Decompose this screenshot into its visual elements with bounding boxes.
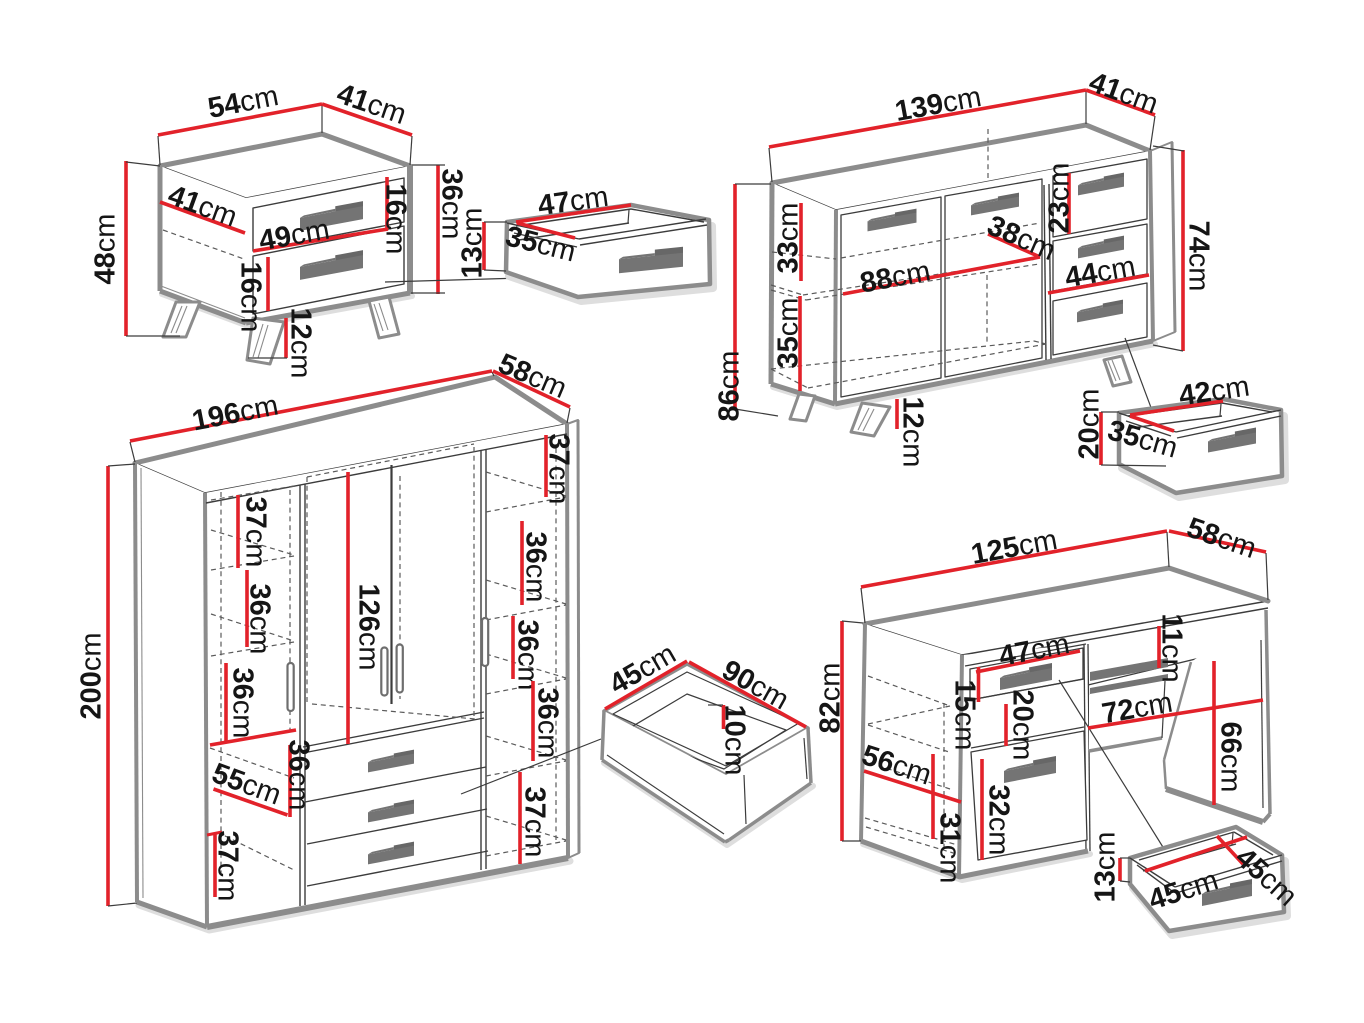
svg-text:54cm: 54cm	[205, 80, 281, 125]
svg-text:86cm: 86cm	[714, 351, 746, 422]
svg-text:20cm: 20cm	[1074, 389, 1106, 460]
svg-text:13cm: 13cm	[1090, 832, 1122, 903]
svg-text:126cm: 126cm	[353, 583, 385, 670]
svg-text:37cm: 37cm	[240, 497, 272, 568]
svg-text:200cm: 200cm	[76, 632, 108, 719]
svg-text:41cm: 41cm	[1085, 66, 1163, 120]
svg-text:36cm: 36cm	[520, 532, 552, 603]
svg-text:36cm: 36cm	[227, 668, 259, 739]
svg-text:16cm: 16cm	[235, 262, 267, 333]
svg-text:35cm: 35cm	[773, 298, 805, 369]
svg-text:41cm: 41cm	[333, 78, 410, 131]
svg-text:11cm: 11cm	[1156, 613, 1188, 682]
svg-text:36cm: 36cm	[532, 688, 564, 759]
svg-text:37cm: 37cm	[212, 831, 244, 902]
svg-text:12cm: 12cm	[897, 397, 929, 468]
svg-text:125cm: 125cm	[969, 524, 1060, 571]
svg-text:74cm: 74cm	[1183, 221, 1215, 292]
svg-text:37cm: 37cm	[519, 787, 551, 858]
svg-text:36cm: 36cm	[244, 584, 276, 655]
svg-text:10cm: 10cm	[719, 705, 751, 776]
svg-text:15cm: 15cm	[949, 680, 981, 751]
svg-text:36cm: 36cm	[283, 740, 315, 811]
svg-text:139cm: 139cm	[893, 81, 984, 128]
svg-text:36cm: 36cm	[512, 620, 544, 691]
svg-text:58cm: 58cm	[1183, 512, 1260, 565]
svg-text:32cm: 32cm	[983, 785, 1015, 856]
svg-text:37cm: 37cm	[543, 434, 575, 505]
svg-text:48cm: 48cm	[90, 214, 122, 285]
svg-text:33cm: 33cm	[773, 203, 805, 274]
svg-text:66cm: 66cm	[1215, 722, 1247, 793]
svg-text:13cm: 13cm	[457, 208, 489, 279]
svg-text:23cm: 23cm	[1044, 163, 1076, 234]
svg-text:31cm: 31cm	[934, 813, 966, 884]
svg-text:16cm: 16cm	[380, 184, 412, 255]
svg-text:20cm: 20cm	[1007, 690, 1039, 761]
svg-text:82cm: 82cm	[815, 663, 847, 734]
svg-text:12cm: 12cm	[285, 308, 317, 379]
